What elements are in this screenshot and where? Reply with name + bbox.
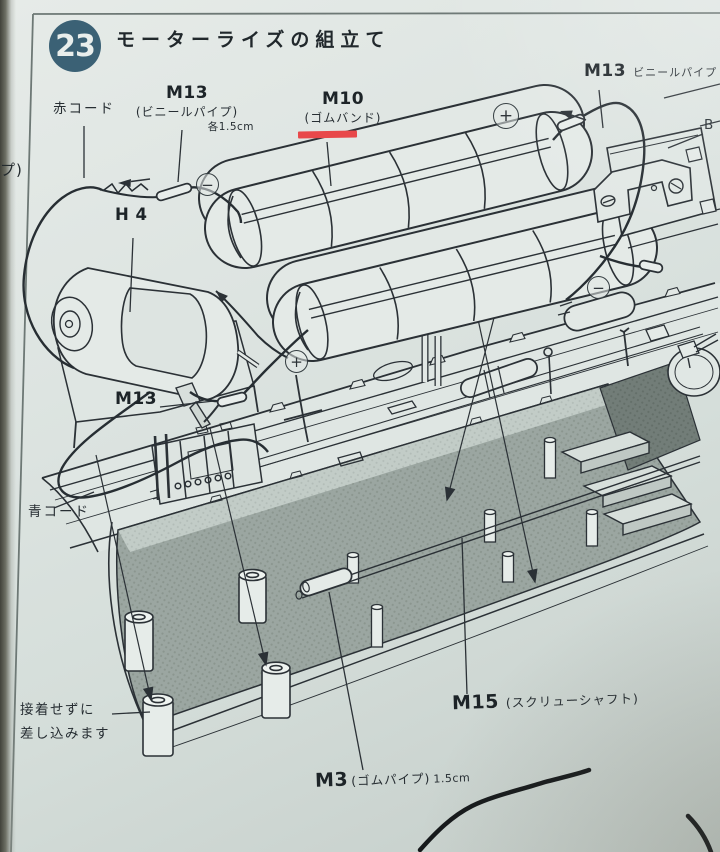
step-title: モーターライズの組立て	[116, 30, 390, 52]
part-note-m3: 1.5cm	[433, 772, 470, 786]
polarity-minus-icon: −	[196, 173, 219, 196]
part-code-m3: M3	[315, 770, 349, 793]
insert-note-line2: 差し込みます	[20, 722, 110, 746]
arrow-joint-left	[118, 179, 150, 187]
joint-vinyl-pipe-1	[161, 188, 187, 196]
part-desc-m13-left: (ビニールパイプ)	[136, 106, 238, 120]
label-insert-note: 接着せずに 差し込みます	[20, 698, 110, 747]
part-code-m13-top: M13	[584, 62, 626, 82]
label-clipped-left: プ)	[0, 162, 23, 179]
label-m10: M10 (ゴムバンド)	[285, 90, 401, 125]
label-h4: H 4	[115, 206, 148, 225]
label-blue-cord: 青コード	[28, 505, 90, 521]
motor-cover-h4	[121, 288, 206, 378]
joint-vinyl-pipe-3	[222, 397, 242, 402]
part-note-m13-left: 各1.5cm	[208, 121, 254, 133]
step-number-badge: 23	[49, 20, 101, 72]
funnel	[558, 302, 622, 318]
label-b-ref: B	[704, 118, 713, 134]
part-desc-m10: (ゴムバンド)	[305, 112, 382, 126]
label-m13-mid: M13	[115, 390, 157, 410]
label-red-cord: 赤コード	[53, 102, 115, 118]
polarity-plus-icon: +	[493, 103, 519, 129]
insert-note-line1: 接着せずに	[20, 698, 110, 722]
part-code-m13-left: M13	[166, 84, 208, 104]
part-desc-m15: (スクリューシャフト)	[506, 692, 639, 711]
label-m13-left: M13 (ビニールパイプ) 各1.5cm	[128, 84, 246, 133]
m10-red-underline	[298, 130, 357, 138]
part-desc-m3: (ゴムパイプ)	[351, 772, 431, 789]
photo-page-edge	[0, 0, 16, 852]
part-code-m15: M15	[452, 692, 500, 715]
polarity-plus-icon: +	[285, 350, 308, 373]
polarity-minus-icon: −	[587, 276, 610, 299]
part-desc-m13-top: ビニールパイプ	[633, 67, 717, 80]
part-code-m10: M10	[322, 90, 364, 110]
label-m13-top: M13 ビニールパイプ	[584, 62, 717, 82]
